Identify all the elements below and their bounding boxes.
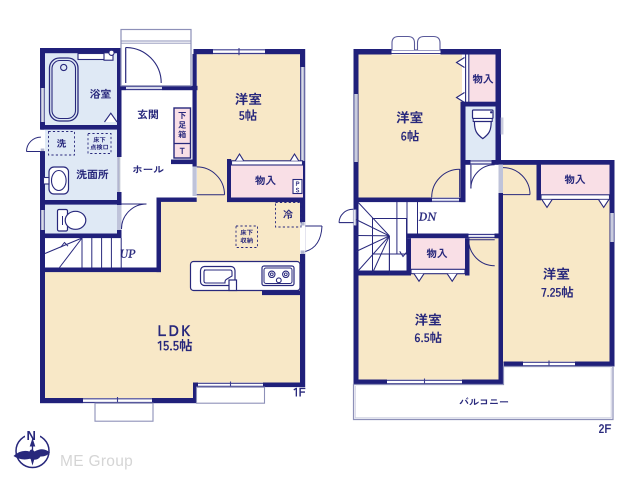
svg-text:N: N [27,428,36,443]
svg-text:ME Group: ME Group [60,453,133,470]
